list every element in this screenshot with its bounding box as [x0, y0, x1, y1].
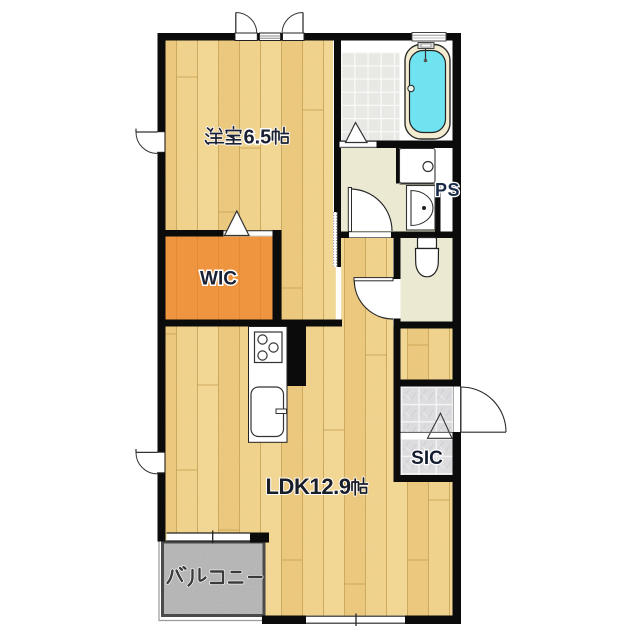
svg-text:WIC: WIC: [200, 269, 237, 290]
svg-text:SIC: SIC: [411, 448, 443, 469]
svg-text:LDK12.9: LDK12.9: [266, 474, 351, 499]
svg-text:PS: PS: [435, 180, 460, 200]
svg-text:6.5: 6.5: [244, 127, 272, 149]
